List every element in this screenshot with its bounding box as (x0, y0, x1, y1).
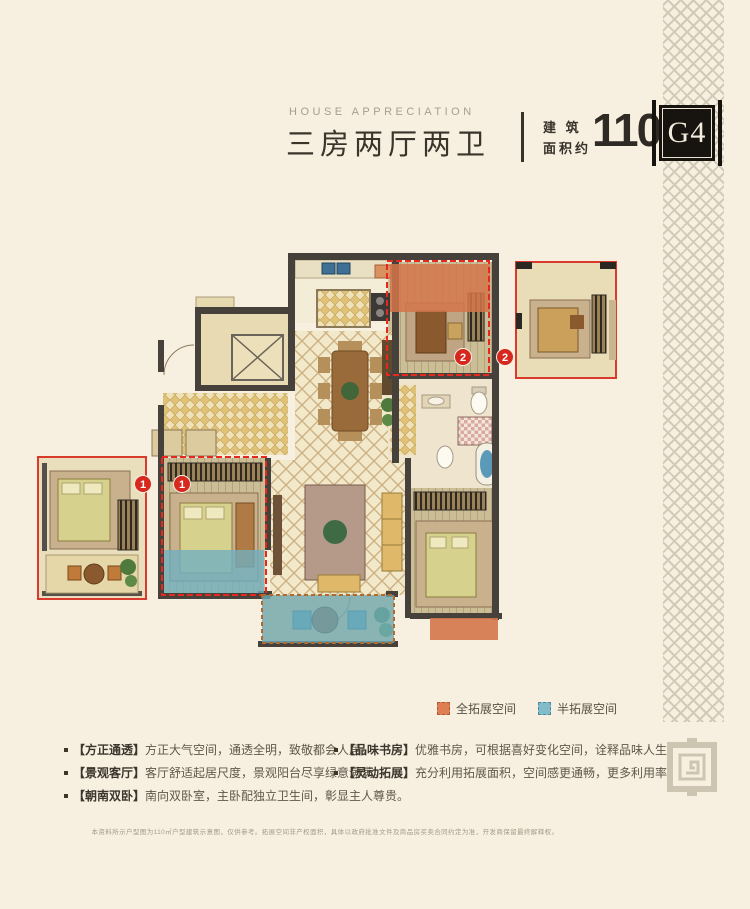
unit-badge: G4 (652, 100, 722, 166)
floor-plan: 1 1 2 2 (30, 245, 630, 665)
header-eyebrow: HOUSE APPRECIATION (289, 106, 475, 118)
feature-tag: 【景观客厅】 (73, 766, 145, 780)
full-expansion-master (430, 618, 498, 640)
badge-2: 2 (460, 352, 466, 364)
bullet-square-icon (64, 748, 68, 752)
badge-side-bar (652, 100, 656, 166)
legend: 全拓展空间 半拓展空间 (437, 700, 617, 717)
feature-item: 【灵动拓展】充分利用拓展面积，空间感更通畅，更多利用率。 (334, 762, 679, 785)
badge-1: 1 (179, 479, 185, 491)
feature-tag: 【方正通透】 (73, 743, 145, 757)
bullet-square-icon (334, 748, 338, 752)
page-title: 三房两厅两卫 (286, 121, 490, 163)
full-expansion-study (390, 264, 490, 312)
legend-item-half: 半拓展空间 (538, 700, 617, 717)
brand-seal-icon (663, 738, 721, 796)
feature-item: 【品味书房】优雅书房，可根据喜好变化空间，诠释品味人生。 (334, 739, 679, 762)
badge-side-bar (718, 100, 722, 166)
bullet-square-icon (64, 794, 68, 798)
badge-1: 1 (140, 479, 146, 491)
bullet-square-icon (64, 771, 68, 775)
feature-tag: 【朝南双卧】 (73, 789, 145, 803)
half-expansion-bedroom1 (164, 550, 264, 593)
feature-item: 【朝南双卧】南向双卧室，主卧配独立卫生间，彰显主人尊贵。 (64, 785, 409, 808)
badge-2: 2 (502, 352, 508, 364)
inset-study-expanded (516, 262, 616, 378)
feature-desc: 充分利用拓展面积，空间感更通畅，更多利用率。 (415, 766, 679, 780)
feature-list-right: 【品味书房】优雅书房，可根据喜好变化空间，诠释品味人生。 【灵动拓展】充分利用拓… (334, 739, 679, 785)
feature-desc: 优雅书房，可根据喜好变化空间，诠释品味人生。 (415, 743, 679, 757)
feature-tag: 【灵动拓展】 (343, 766, 415, 780)
unit-code-label: G4 (668, 116, 707, 150)
area-label: 建 筑 面积约 (543, 117, 591, 159)
half-expansion-balcony (262, 595, 394, 643)
bullet-square-icon (334, 771, 338, 775)
disclaimer-text: 本资料所示户型图为110㎡户型建筑示意图，仅供参考。拓展空间非产权面积，具体以政… (40, 826, 610, 836)
unit-code-box: G4 (659, 105, 715, 161)
half-expansion-swatch-icon (538, 702, 551, 715)
feature-desc: 南向双卧室，主卧配独立卫生间，彰显主人尊贵。 (145, 789, 409, 803)
legend-full-label: 全拓展空间 (456, 700, 516, 717)
header-divider (521, 112, 524, 162)
feature-tag: 【品味书房】 (343, 743, 415, 757)
inset-bedroom1-expanded (38, 457, 146, 599)
full-expansion-swatch-icon (437, 702, 450, 715)
legend-half-label: 半拓展空间 (557, 700, 617, 717)
legend-item-full: 全拓展空间 (437, 700, 516, 717)
